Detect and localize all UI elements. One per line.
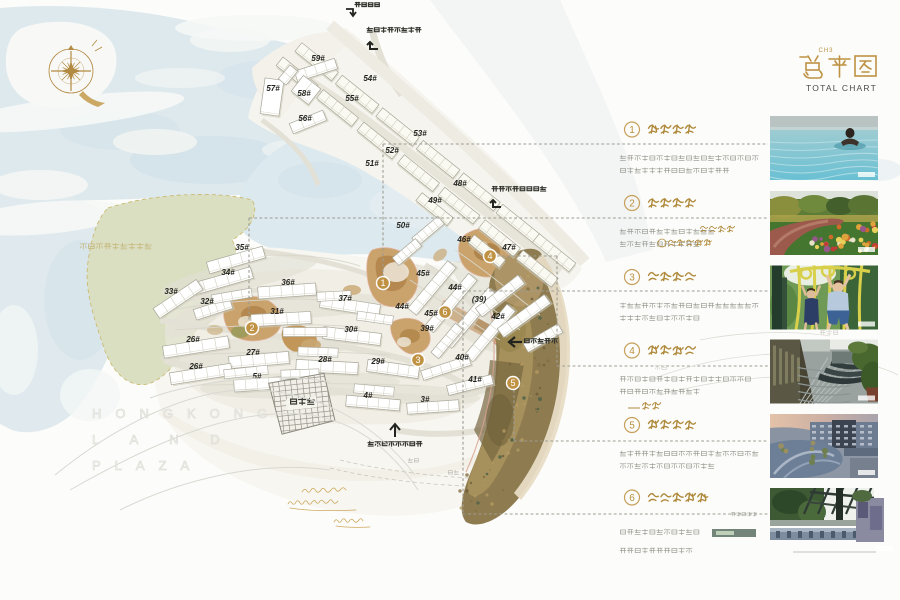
svg-text:4: 4 xyxy=(487,251,492,261)
svg-text:4#: 4# xyxy=(363,391,373,400)
svg-text:46#: 46# xyxy=(456,235,471,244)
svg-text:2: 2 xyxy=(629,199,635,210)
svg-text:37#: 37# xyxy=(338,294,352,303)
svg-text:28#: 28# xyxy=(317,355,332,364)
svg-text:54#: 54# xyxy=(363,74,377,83)
svg-text:26#: 26# xyxy=(185,335,200,344)
svg-text:45#: 45# xyxy=(415,269,430,278)
svg-text:32#: 32# xyxy=(200,297,214,306)
svg-text:CH3: CH3 xyxy=(818,48,833,54)
svg-text:51#: 51# xyxy=(365,159,379,168)
svg-text:HONGKONG: HONGKONG xyxy=(92,406,281,421)
svg-text:2: 2 xyxy=(249,323,254,333)
svg-text:45#: 45# xyxy=(423,309,438,318)
svg-text:6: 6 xyxy=(442,307,447,317)
svg-text:5: 5 xyxy=(629,421,635,432)
svg-text:55#: 55# xyxy=(345,94,359,103)
svg-text:42#: 42# xyxy=(490,312,505,321)
svg-text:44#: 44# xyxy=(447,283,462,292)
svg-text:49#: 49# xyxy=(427,196,442,205)
svg-text:3: 3 xyxy=(629,273,635,284)
svg-text:36#: 36# xyxy=(281,278,295,287)
svg-text:31#: 31# xyxy=(270,307,284,316)
svg-text:58#: 58# xyxy=(297,89,311,98)
svg-text:5#: 5# xyxy=(253,372,262,381)
svg-text:4: 4 xyxy=(629,346,635,357)
svg-text:57#: 57# xyxy=(266,84,280,93)
svg-text:33#: 33# xyxy=(164,287,178,296)
svg-text:L A N D: L A N D xyxy=(92,432,234,447)
svg-text:48#: 48# xyxy=(452,179,467,188)
svg-text:41#: 41# xyxy=(467,375,482,384)
svg-text:50#: 50# xyxy=(396,221,410,230)
svg-text:59#: 59# xyxy=(311,54,325,63)
svg-text:40#: 40# xyxy=(454,353,469,362)
svg-text:3#: 3# xyxy=(421,395,430,404)
svg-text:35#: 35# xyxy=(235,243,249,252)
svg-text:(39): (39) xyxy=(472,295,487,304)
svg-text:47#: 47# xyxy=(501,243,516,252)
svg-text:5: 5 xyxy=(510,378,515,388)
svg-text:PLAZA: PLAZA xyxy=(92,458,203,473)
svg-text:34#: 34# xyxy=(221,268,235,277)
svg-text:1: 1 xyxy=(380,278,385,288)
svg-text:6: 6 xyxy=(629,493,635,504)
svg-text:TOTAL CHART: TOTAL CHART xyxy=(806,83,877,93)
svg-text:3: 3 xyxy=(415,355,420,365)
svg-text:44#: 44# xyxy=(394,302,409,311)
svg-text:52#: 52# xyxy=(385,146,399,155)
svg-text:26#: 26# xyxy=(188,362,203,371)
svg-text:30#: 30# xyxy=(344,325,358,334)
svg-text:27#: 27# xyxy=(245,348,260,357)
svg-text:56#: 56# xyxy=(298,114,312,123)
svg-text:39#: 39# xyxy=(420,324,434,333)
svg-text:53#: 53# xyxy=(413,129,427,138)
svg-text:1: 1 xyxy=(629,125,635,136)
svg-text:29#: 29# xyxy=(370,357,385,366)
